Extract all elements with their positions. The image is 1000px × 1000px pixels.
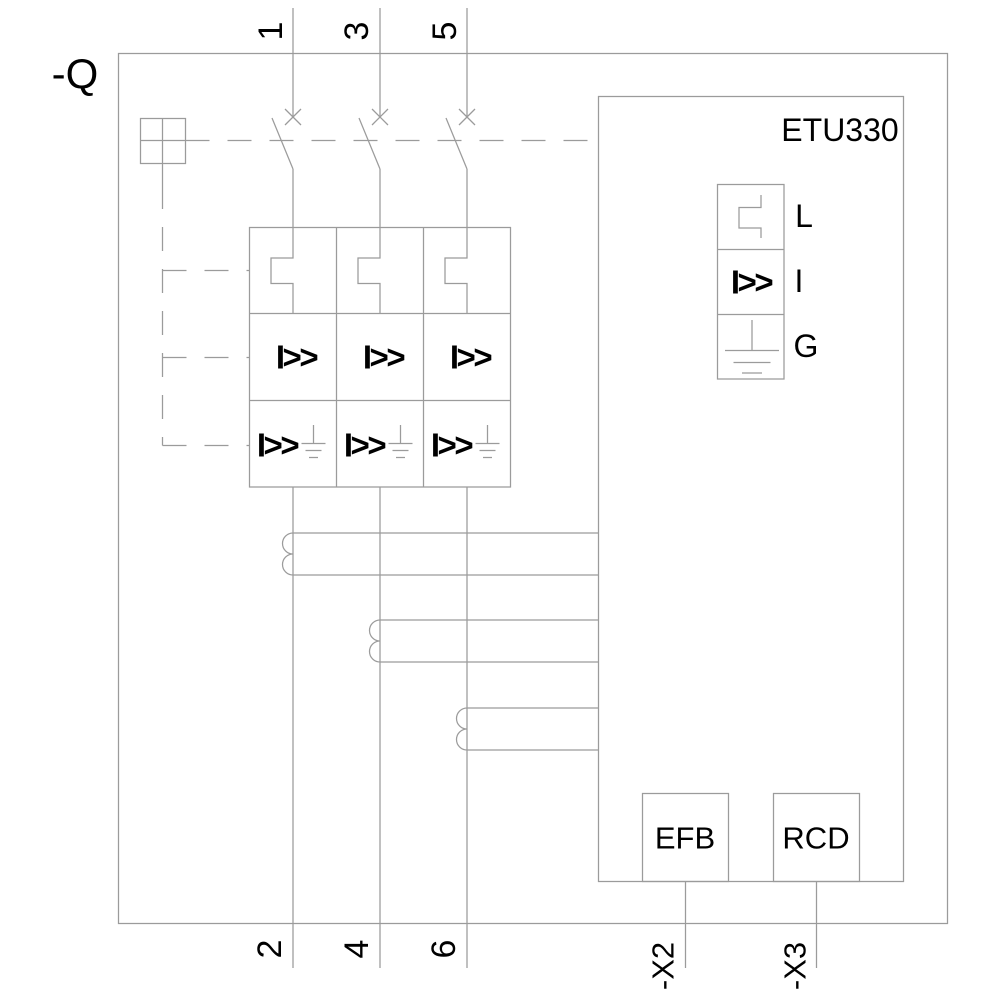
long-time-curve-icon: [445, 228, 467, 314]
contact-blade-icon: [272, 118, 293, 169]
pole-3-conductor: [445, 8, 475, 968]
ground-fault-symbol-pole-3: I>>: [431, 429, 471, 462]
trip-unit-name: ETU330: [781, 114, 898, 146]
contact-blade-icon: [446, 118, 467, 169]
ground-fault-symbol-pole-1: I>>: [257, 429, 297, 462]
long-time-curve-icon: [739, 195, 761, 238]
pole-2-conductor: [358, 8, 388, 968]
etu-function-label-I: I: [795, 265, 804, 297]
etu-function-label-L: L: [795, 200, 813, 232]
short-circuit-symbol-pole-1: I>>: [276, 341, 316, 374]
ground-icon: [389, 425, 413, 458]
long-time-curve-icon: [358, 228, 380, 314]
current-transformer-2-icon: [370, 620, 599, 662]
trip-unit-box: [599, 97, 904, 882]
ground-icon: [476, 425, 500, 458]
bottom-terminal-label-4: 4: [340, 940, 374, 959]
etu-instantaneous-symbol: I>>: [731, 266, 771, 299]
device-tag: -Q: [52, 53, 99, 95]
top-terminal-label-5: 5: [428, 22, 462, 41]
ground-icon: [302, 425, 326, 458]
ground-fault-symbol-pole-2: I>>: [344, 429, 384, 462]
bottom-terminal-label-2: 2: [253, 940, 287, 959]
ground-icon: [725, 320, 779, 373]
schematic-linework: [0, 0, 1000, 1000]
aux-terminal-label-x3: -X3: [780, 942, 811, 990]
current-transformer-1-icon: [283, 533, 599, 575]
long-time-curve-icon: [271, 228, 293, 314]
etu-function-label-G: G: [794, 330, 819, 362]
operating-mechanism-icon: [141, 119, 186, 186]
circuit-breaker-schematic: -Q 1 3 5 ETU330 L I>> I G I>> I>> I>> I>…: [0, 0, 1000, 1000]
short-circuit-symbol-pole-2: I>>: [363, 341, 403, 374]
top-terminal-label-3: 3: [340, 22, 374, 41]
bottom-terminal-label-6: 6: [427, 940, 461, 959]
top-terminal-label-1: 1: [254, 22, 288, 41]
short-circuit-symbol-pole-3: I>>: [450, 341, 490, 374]
efb-module-label: EFB: [655, 823, 715, 854]
rcd-module-label: RCD: [782, 823, 849, 854]
pole-1-conductor: [271, 8, 301, 968]
contact-blade-icon: [359, 118, 380, 169]
aux-terminal-label-x2: -X2: [648, 942, 679, 990]
current-transformer-3-icon: [457, 708, 599, 750]
